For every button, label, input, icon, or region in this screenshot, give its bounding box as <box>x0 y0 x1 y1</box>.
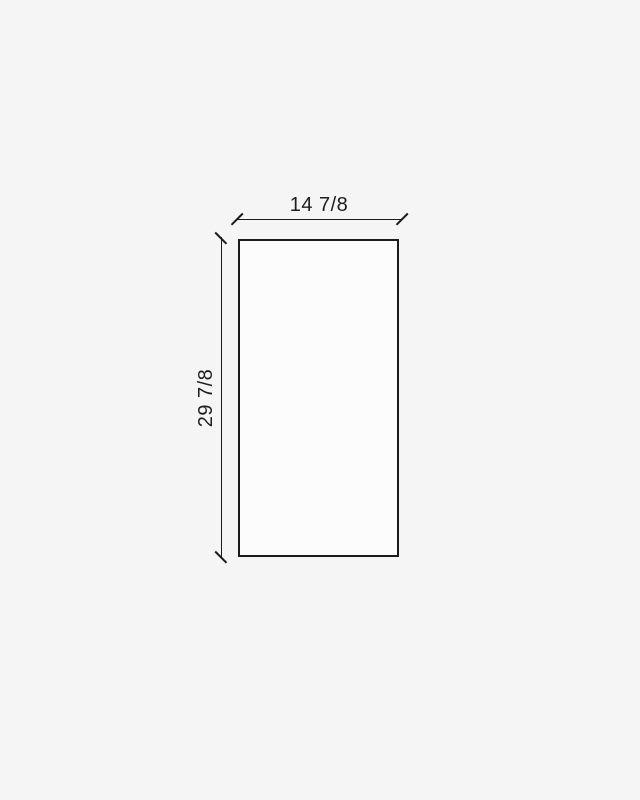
panel-rectangle <box>238 239 399 557</box>
height-dimension-label: 29 7/8 <box>196 369 216 428</box>
height-dimension-line <box>221 237 222 558</box>
dimension-drawing: 14 7/8 29 7/8 <box>0 0 640 800</box>
width-dimension-line <box>237 219 402 220</box>
width-dimension-label: 14 7/8 <box>290 195 349 215</box>
